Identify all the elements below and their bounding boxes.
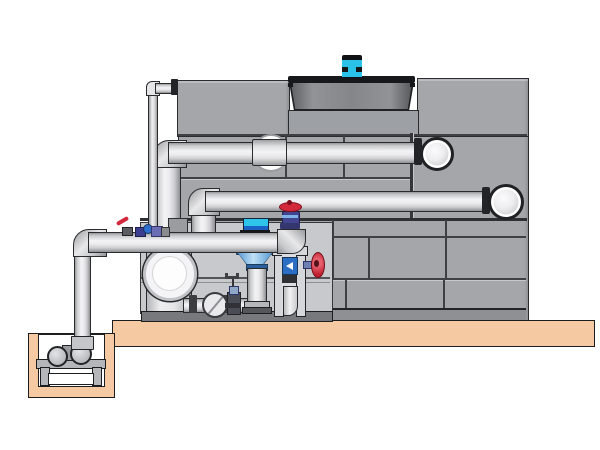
seam-v-7	[443, 280, 445, 308]
sump-pump-motor	[47, 346, 68, 367]
flow-device	[282, 257, 298, 275]
inline-pump-motor-base	[240, 230, 270, 233]
inline-pump-motor-top	[244, 219, 268, 226]
side-valve-hub	[314, 260, 319, 267]
sump-riser-pipe	[74, 246, 91, 344]
seam-v-4	[368, 238, 370, 278]
fan-flange-tab-right	[410, 83, 415, 87]
gate-valve-handle-tip-left	[225, 273, 228, 277]
fan-motor-body-upper	[342, 60, 362, 67]
gate-valve-bonnet	[229, 286, 239, 295]
seam-h-top	[178, 134, 527, 136]
illustration-canvas	[0, 0, 600, 450]
makeup-thin-flange	[171, 79, 178, 95]
flow-device-label-band	[282, 275, 296, 283]
upper-pipe-elbow-end	[420, 137, 454, 171]
riser-valve-hub	[287, 200, 292, 205]
drain-valve-body	[122, 227, 133, 236]
gate-valve-flange	[225, 303, 241, 308]
riser-valve-flange	[280, 223, 300, 229]
instrument-fitting-3	[161, 227, 170, 237]
riser-valve-band	[282, 215, 298, 218]
gate-valve-handle-tip-right	[236, 273, 239, 277]
flow-device-arrow	[286, 262, 293, 270]
tower-top-box-right	[417, 78, 529, 137]
drain-valve-lever	[116, 216, 129, 226]
upper-pipe-sleeve	[252, 139, 287, 166]
tower-top-box-left	[177, 80, 290, 137]
seam-h-mid1-light	[179, 179, 411, 180]
seam-v-6	[345, 280, 347, 308]
upper-pipe	[168, 142, 422, 164]
fan-motor	[342, 55, 362, 79]
strainer-face-inner	[152, 256, 187, 291]
gate-valve-stem	[232, 279, 234, 287]
makeup-flange-1	[189, 295, 197, 313]
fan-cowl	[291, 83, 412, 109]
pump-foot	[242, 307, 272, 314]
main-pipe	[88, 232, 282, 253]
fan-motor-base	[340, 77, 364, 80]
seam-v-5	[445, 220, 447, 278]
frame-drain-pipe	[283, 286, 298, 316]
check-valve-stripe	[205, 294, 226, 318]
tower-band-under-fan	[288, 110, 419, 137]
fan-flange-tab-left	[288, 83, 293, 87]
sump-riser-collar	[71, 336, 94, 350]
lower-pipe	[205, 191, 488, 212]
lower-pipe-elbow-end	[488, 184, 524, 220]
pump-stand-shelf	[48, 373, 94, 385]
concrete-slab	[112, 320, 595, 347]
